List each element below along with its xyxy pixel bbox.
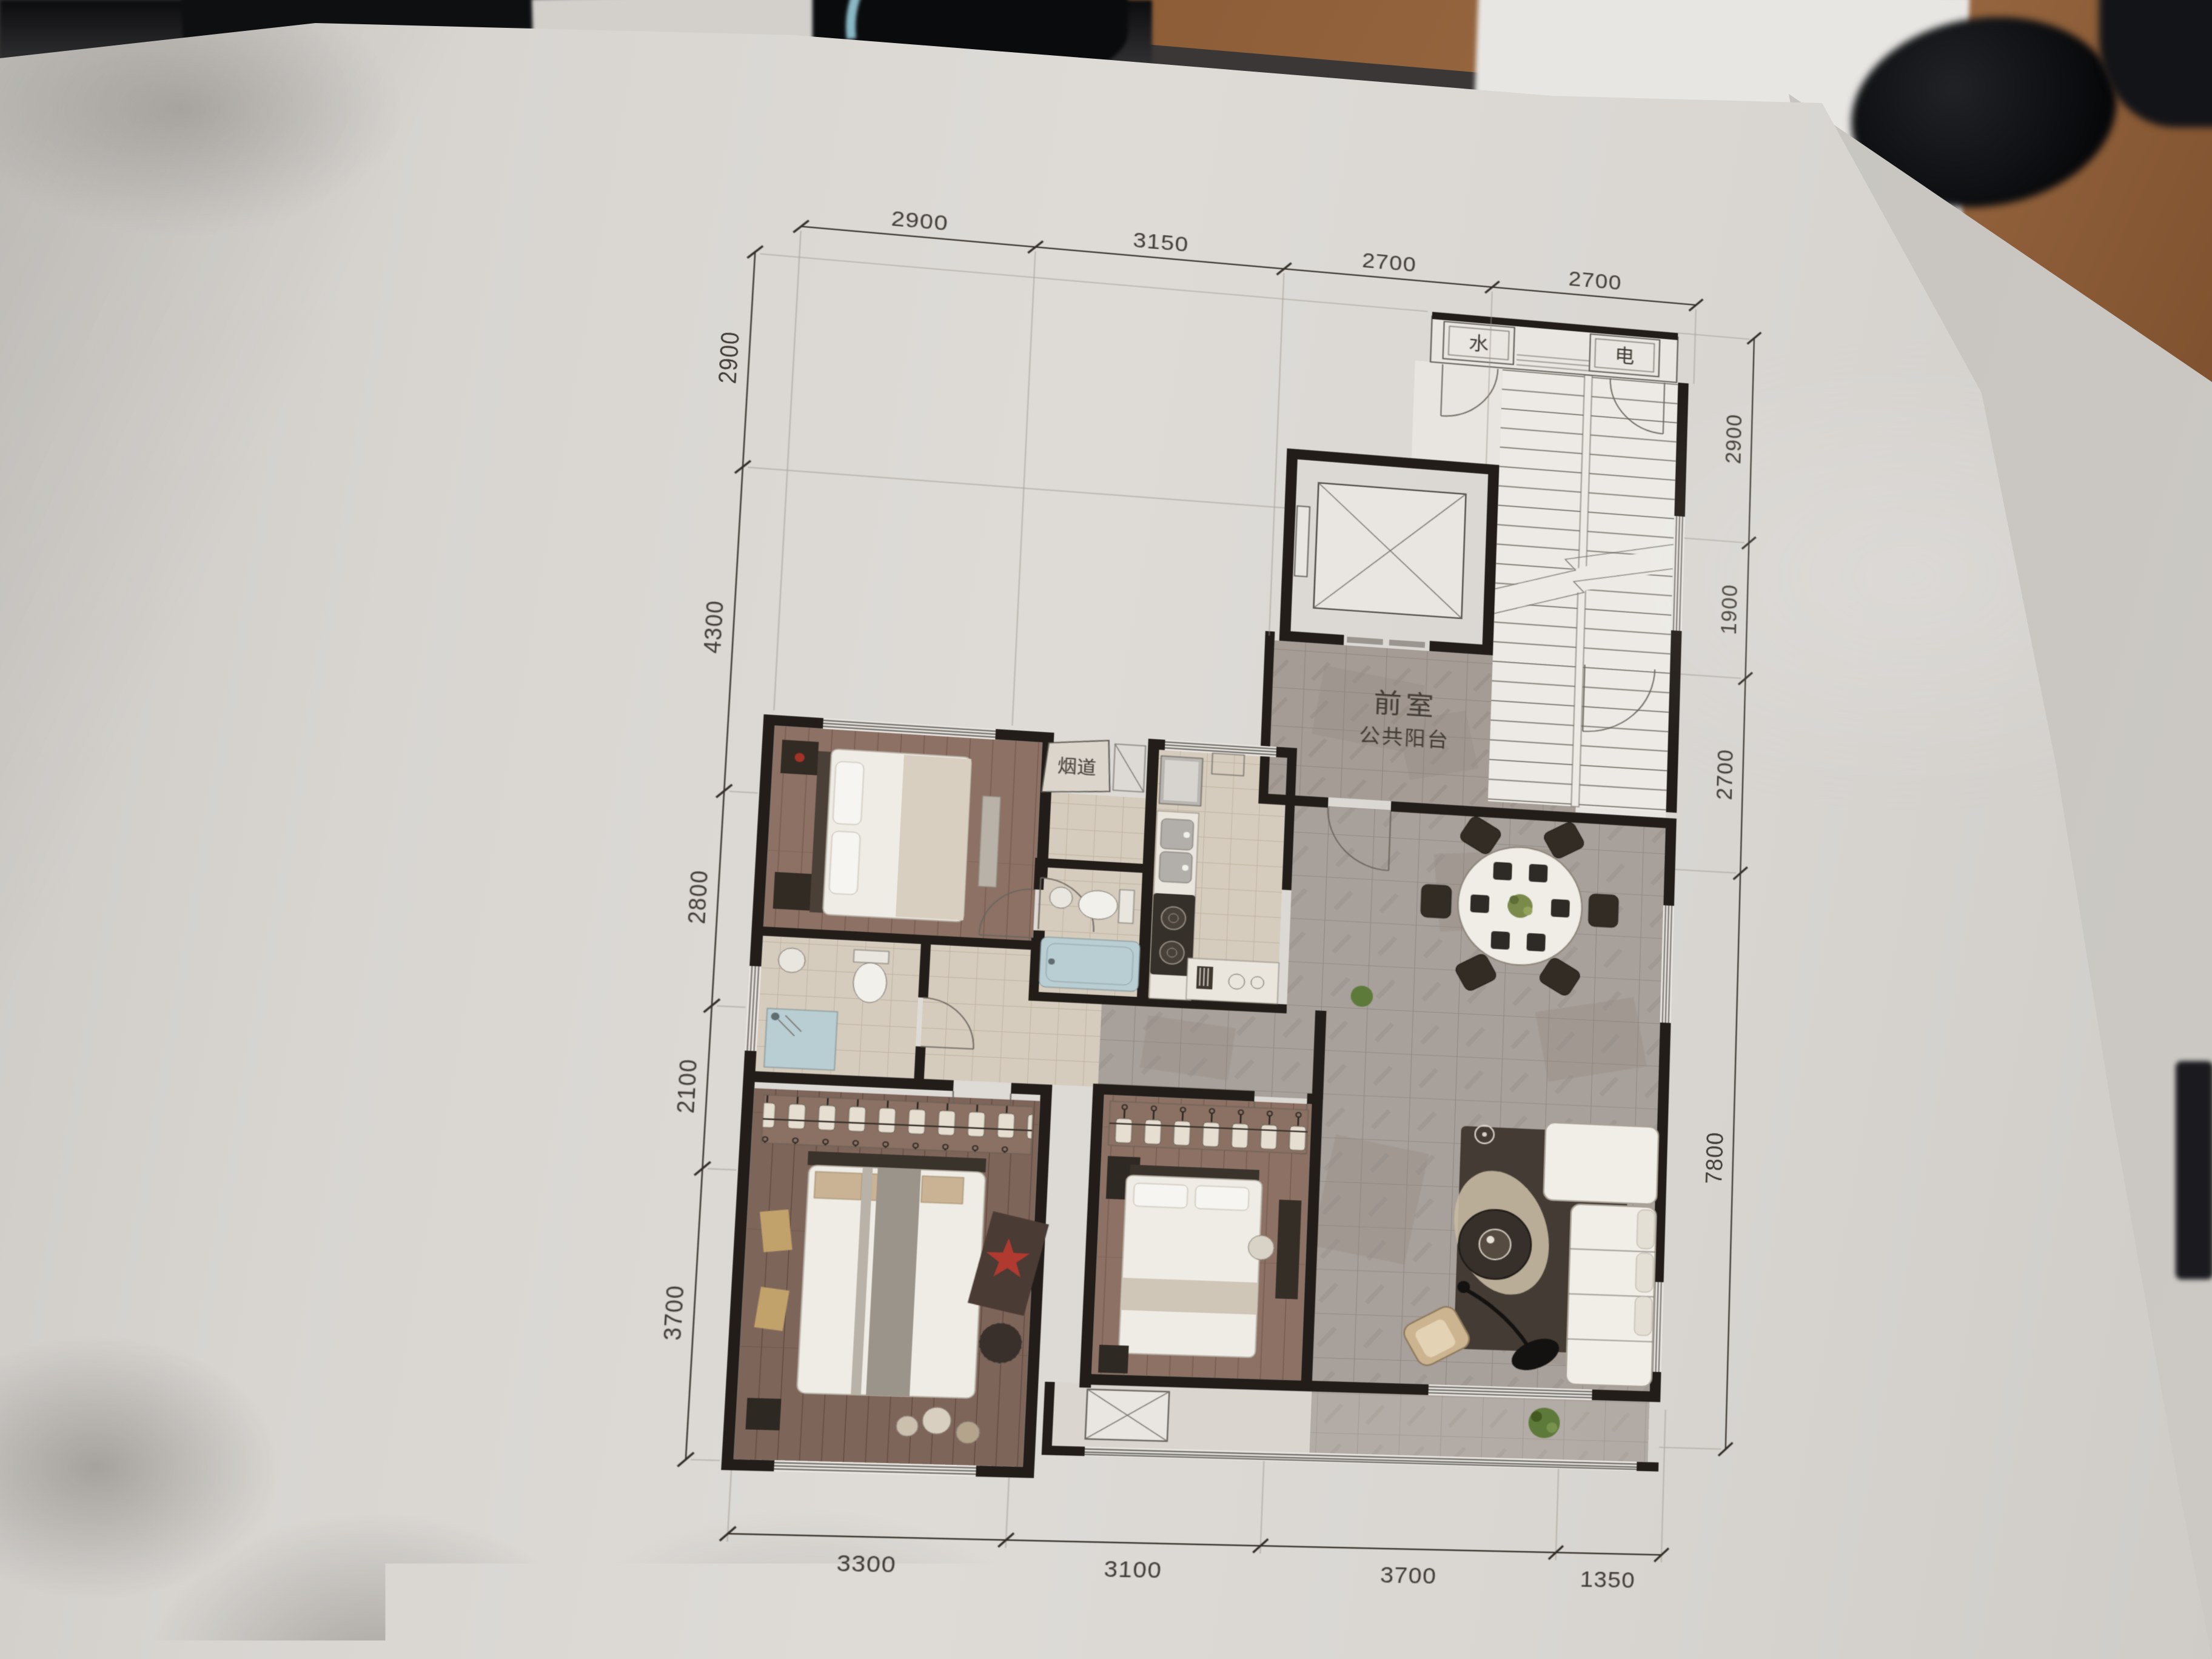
- dim-top-2: 3150: [1133, 228, 1190, 257]
- room-label-front-room: 前室: [1373, 688, 1438, 722]
- dim-top-3: 2700: [1361, 248, 1416, 276]
- dim-bottom-3: 3700: [1379, 1562, 1437, 1589]
- elevator-panel: [1295, 506, 1310, 577]
- flue: 烟道: [1042, 737, 1146, 798]
- dim-right-2: 1900: [1716, 583, 1743, 635]
- dim-left-5: 3700: [658, 1284, 689, 1341]
- room-label-flue: 烟道: [1057, 756, 1097, 778]
- dim-bottom-4: 1350: [1580, 1566, 1636, 1593]
- dim-left-3: 2800: [682, 869, 714, 925]
- dim-bottom-1: 3300: [836, 1550, 897, 1578]
- dim-top-4: 2700: [1568, 267, 1622, 295]
- floor-plan-svg: 水 电: [568, 139, 1828, 1624]
- dim-left-1: 2900: [714, 330, 745, 384]
- floorplan-paper: 水 电: [0, 0, 2212, 1659]
- dark-object-right-edge: [2176, 1061, 2212, 1279]
- dim-left-4: 2100: [671, 1058, 703, 1114]
- room-label-water: 水: [1469, 333, 1489, 355]
- dim-top-1: 2900: [891, 206, 949, 236]
- elevator: [1279, 448, 1500, 655]
- dim-right-3: 2700: [1712, 748, 1738, 801]
- room-label-electric: 电: [1615, 346, 1635, 367]
- floor-plan: 水 电: [568, 139, 1828, 1624]
- desk: [1275, 1199, 1301, 1299]
- dim-bottom-2: 3100: [1103, 1556, 1162, 1583]
- sofa-chaise: [1543, 1122, 1658, 1205]
- dim-right-1: 2900: [1721, 413, 1747, 465]
- dim-right-4: 7800: [1701, 1131, 1728, 1185]
- photo-scene: 水 电: [0, 0, 2212, 1659]
- dim-left-2: 4300: [698, 599, 729, 654]
